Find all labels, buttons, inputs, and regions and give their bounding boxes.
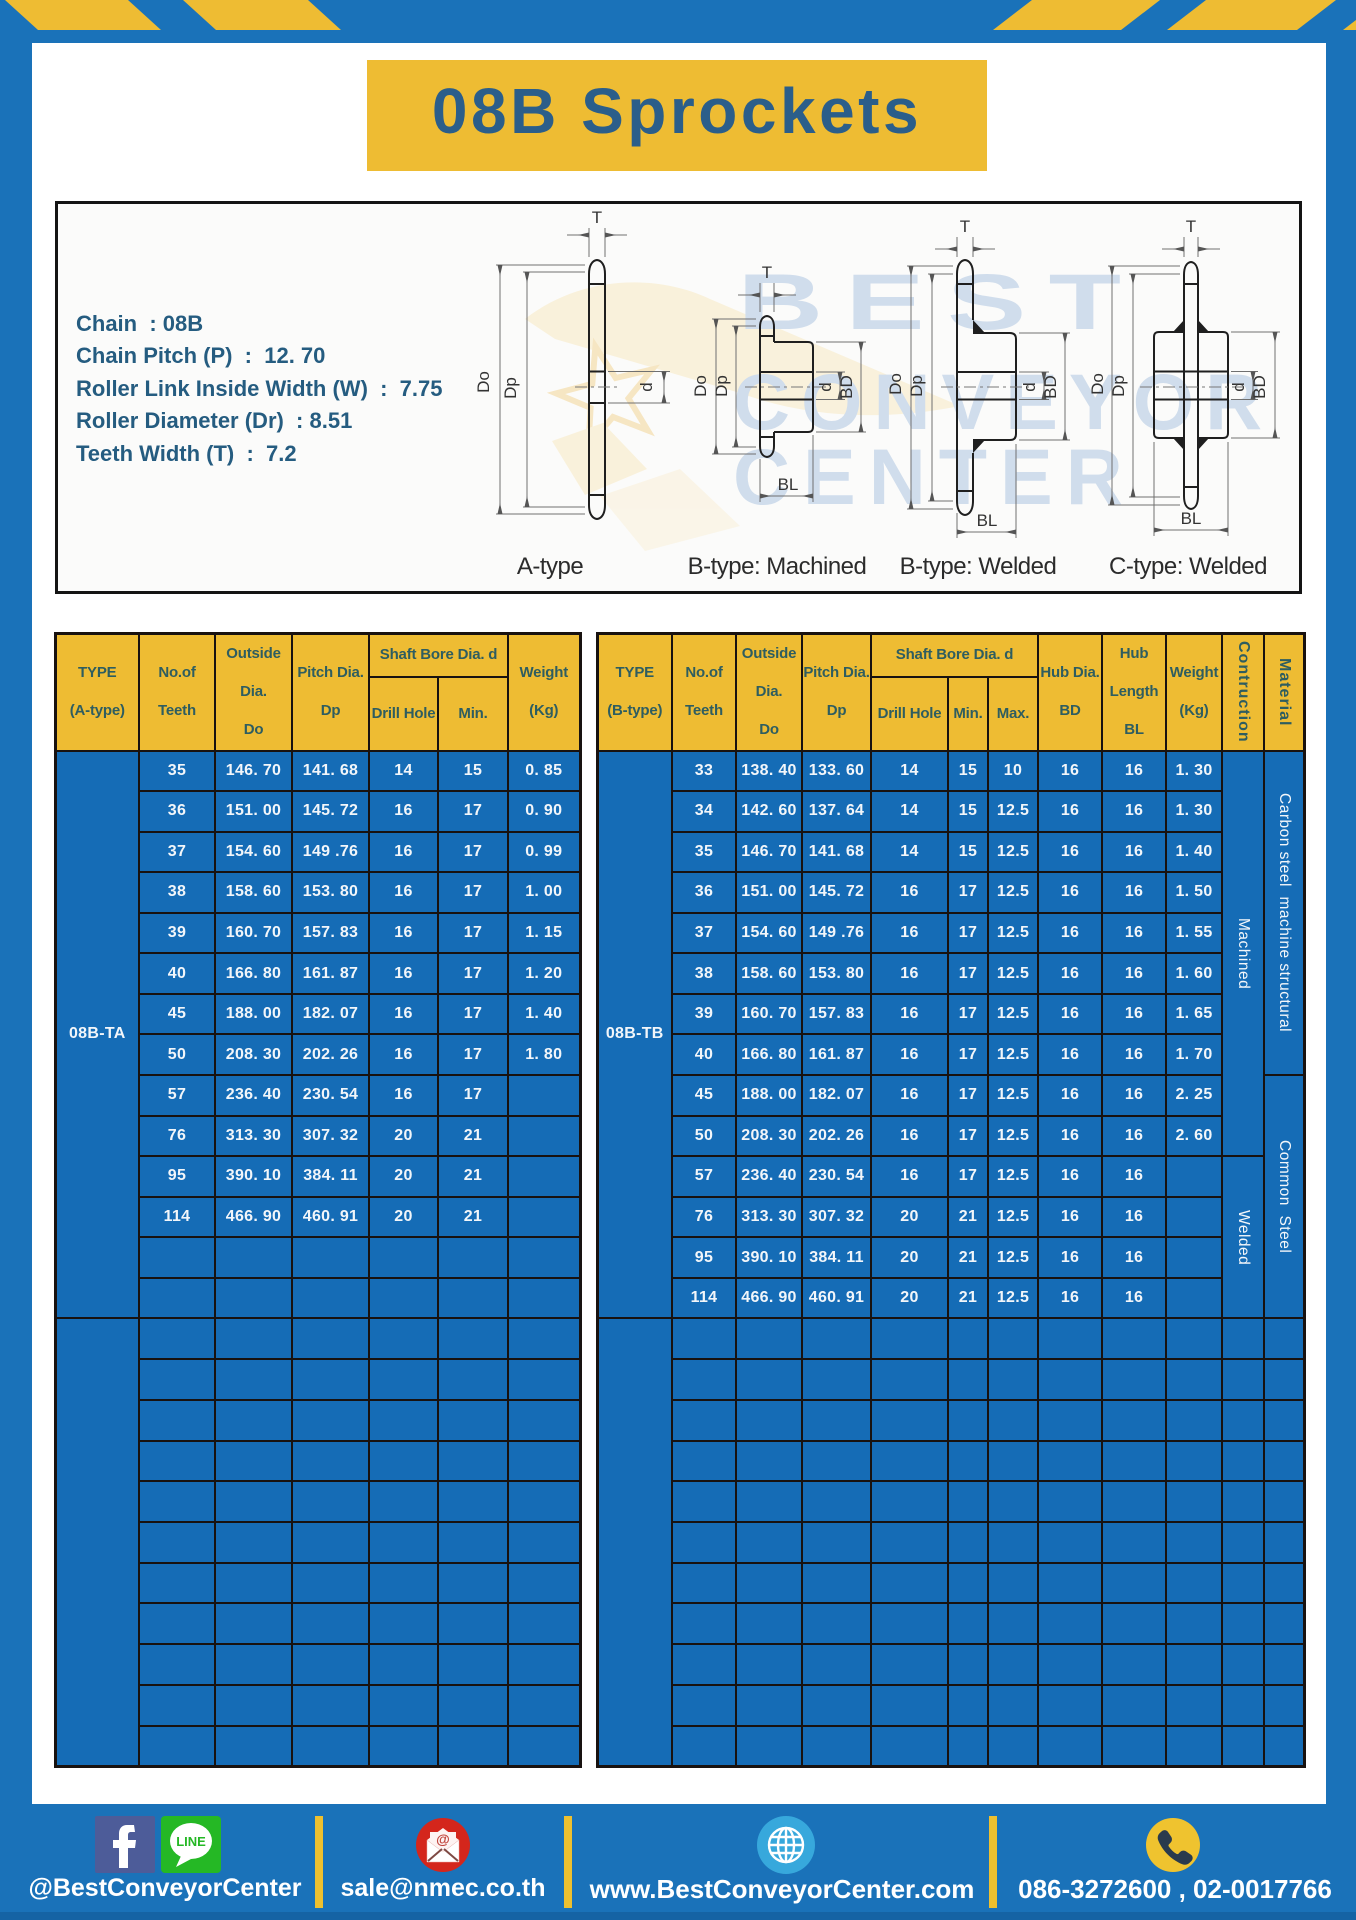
svg-text:BD: BD — [1250, 375, 1269, 399]
svg-text:T: T — [762, 263, 772, 282]
svg-text:T: T — [1186, 217, 1196, 236]
svg-text:BD: BD — [1041, 375, 1060, 399]
svg-text:d: d — [816, 382, 835, 391]
svg-text:BL: BL — [977, 511, 998, 530]
svg-text:Do: Do — [886, 373, 905, 395]
svg-text:A-type: A-type — [517, 553, 584, 580]
svg-text:@: @ — [436, 1831, 450, 1847]
svg-text:BL: BL — [778, 475, 799, 494]
svg-text:B-type: Welded: B-type: Welded — [900, 553, 1057, 580]
svg-text:Dp: Dp — [1109, 375, 1128, 397]
svg-text:BEST: BEST — [738, 258, 1144, 346]
svg-text:d: d — [1229, 382, 1248, 391]
svg-text:Do: Do — [691, 375, 710, 397]
svg-text:d: d — [1020, 382, 1039, 391]
svg-text:BD: BD — [837, 375, 856, 399]
svg-text:Dp: Dp — [712, 375, 731, 397]
svg-text:Do: Do — [1088, 373, 1107, 395]
svg-text:LINE: LINE — [176, 1834, 206, 1849]
svg-text:T: T — [960, 217, 970, 236]
svg-text:Dp: Dp — [501, 377, 520, 399]
svg-text:B-type: Machined: B-type: Machined — [688, 553, 867, 580]
svg-text:BL: BL — [1181, 509, 1202, 528]
svg-text:d: d — [637, 382, 656, 391]
svg-text:C-type: Welded: C-type: Welded — [1109, 553, 1267, 580]
svg-text:Do: Do — [474, 371, 493, 393]
svg-text:T: T — [592, 208, 602, 227]
svg-text:Dp: Dp — [907, 375, 926, 397]
